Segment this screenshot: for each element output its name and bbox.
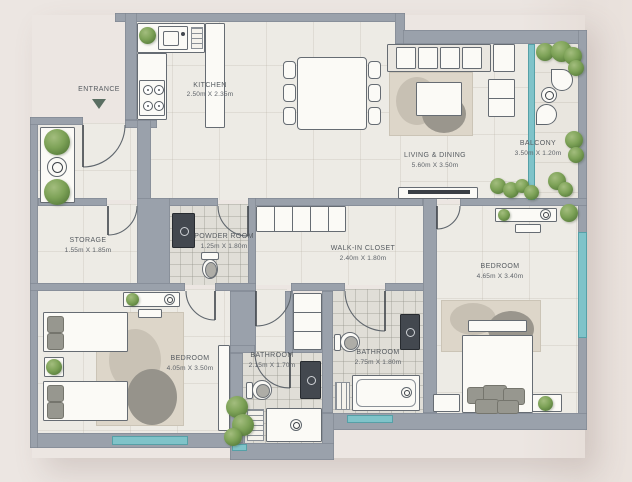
- bedroomR-dresser-plant: [498, 209, 510, 221]
- room-dims-powder-room: 1.25m X 1.80m: [201, 243, 248, 250]
- door-arc-bathroom-right: [345, 291, 385, 331]
- door-arc-bedroom-left: [186, 291, 215, 320]
- room-label-bedroom-right: BEDROOM: [481, 263, 520, 270]
- room-dims-walk-in-closet: 2.40m X 1.80m: [340, 255, 387, 262]
- entrance-arrow-icon: [92, 99, 106, 109]
- stove: [139, 80, 165, 116]
- door-arc-storage: [108, 206, 137, 235]
- balcony-plant: [568, 147, 584, 163]
- porch-plant: [44, 179, 70, 205]
- stove-burner: [154, 101, 164, 111]
- room-dims-balcony: 3.50m X 1.20m: [515, 150, 562, 157]
- living-plant: [524, 185, 539, 200]
- room-label-walk-in-closet: WALK-IN CLOSET: [331, 245, 395, 252]
- room-label-bedroom-left: BEDROOM: [171, 355, 210, 362]
- balcony-chair: [536, 104, 557, 125]
- kitchen-sink-basin: [163, 31, 179, 46]
- room-label-living-dining: LIVING & DINING: [404, 152, 466, 159]
- stove-burner: [154, 85, 164, 95]
- door-arc-powder: [218, 206, 248, 236]
- kitchen-rack: [191, 27, 203, 49]
- bedroomR-dresser-mirror: [540, 209, 551, 220]
- balcony-plant: [558, 182, 573, 197]
- door-arc-entrance: [83, 125, 125, 167]
- dresser-plant: [126, 293, 139, 306]
- room-label-balcony: BALCONY: [520, 140, 556, 147]
- stove-burner: [143, 85, 153, 95]
- porch-table: [47, 157, 67, 177]
- room-dims-living-dining: 5.60m X 3.50m: [412, 162, 459, 169]
- kitchen-plant: [139, 27, 156, 44]
- nightstand-plant: [538, 396, 553, 411]
- room-dims-bedroom-right: 4.65m X 3.40m: [477, 273, 524, 280]
- bathL-shower-head: [290, 419, 302, 431]
- door-arc-closet: [256, 291, 291, 326]
- room-dims-bathroom-left: 2.15m X 1.70m: [249, 362, 296, 369]
- bedroomR-corner-plant: [560, 204, 578, 222]
- room-label-powder-room: POWDER ROOM: [194, 233, 254, 240]
- room-label-storage: STORAGE: [70, 237, 107, 244]
- balcony-plant: [568, 60, 584, 76]
- nightstand-plant: [46, 359, 62, 375]
- dresser-mirror: [164, 294, 175, 305]
- bathR-faucet: [401, 387, 412, 398]
- stove-burner: [143, 101, 153, 111]
- room-dims-storage: 1.55m X 1.85m: [65, 247, 112, 254]
- kitchen-faucet: [181, 32, 185, 36]
- room-label-bathroom-left: BATHROOM: [250, 352, 293, 359]
- door-arc-bedroom-right: [437, 206, 460, 229]
- kitchen-sink: [158, 26, 188, 50]
- porch-plant: [44, 129, 70, 155]
- room-dims-bathroom-right: 2.75m X 1.80m: [355, 359, 402, 366]
- room-label-kitchen: KITCHEN: [193, 82, 227, 89]
- bath-corner-plant: [224, 428, 242, 446]
- entrance-label: ENTRANCE: [78, 86, 120, 93]
- room-dims-kitchen: 2.50m X 2.35m: [187, 91, 234, 98]
- balcony-table: [541, 87, 557, 103]
- room-label-bathroom-right: BATHROOM: [356, 349, 399, 356]
- room-dims-bedroom-left: 4.05m X 3.50m: [167, 365, 214, 372]
